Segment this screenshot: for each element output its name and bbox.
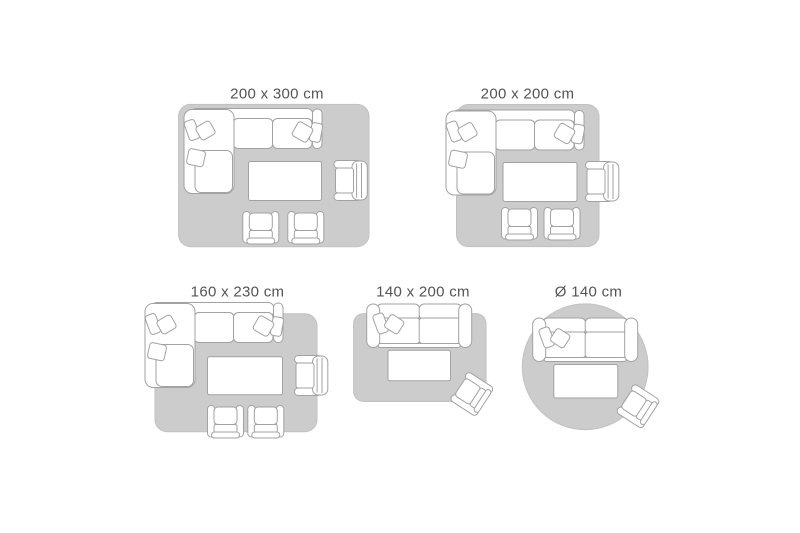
svg-text:200 x 300 cm: 200 x 300 cm [230,86,324,103]
svg-text:Ø 140 cm: Ø 140 cm [555,284,622,301]
svg-text:140 x 200 cm: 140 x 200 cm [376,284,470,301]
svg-text:160 x 230 cm: 160 x 230 cm [191,284,285,301]
svg-text:200 x 200 cm: 200 x 200 cm [481,86,575,103]
